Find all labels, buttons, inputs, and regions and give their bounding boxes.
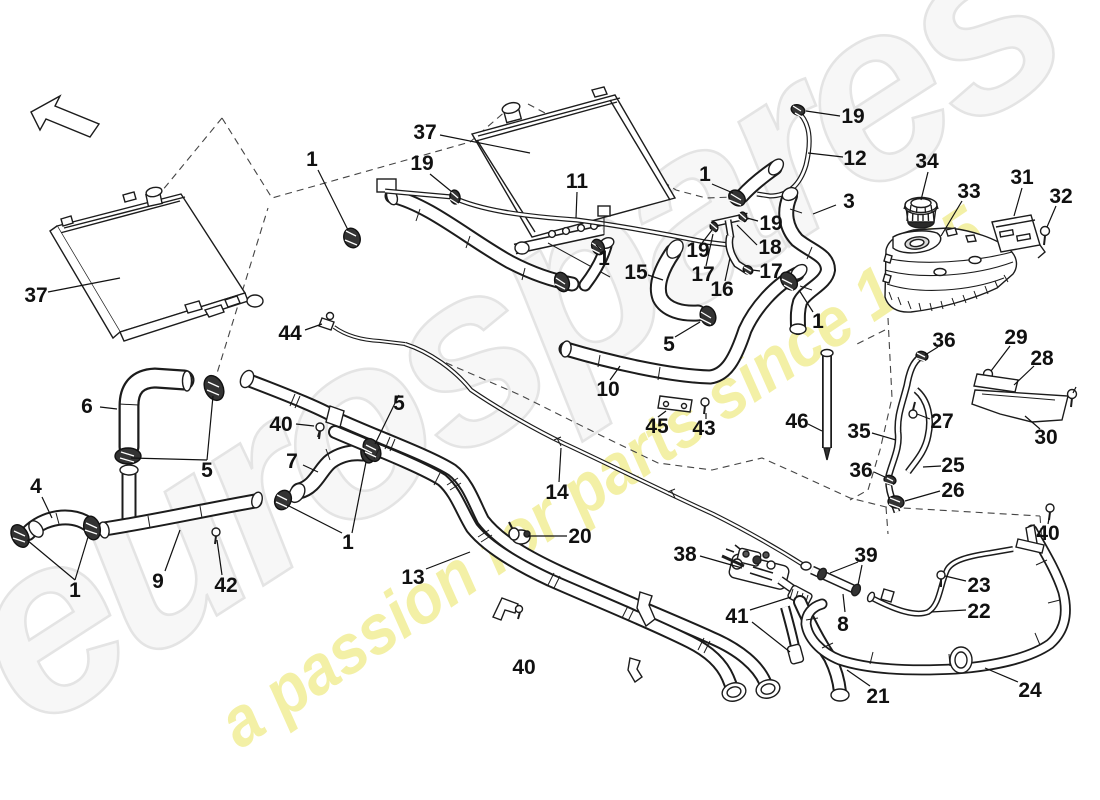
svg-text:26: 26 [941, 479, 964, 502]
svg-text:28: 28 [1030, 347, 1054, 370]
svg-text:19: 19 [410, 152, 433, 175]
svg-text:42: 42 [214, 574, 237, 597]
svg-text:32: 32 [1049, 185, 1072, 208]
svg-text:33: 33 [957, 180, 980, 203]
svg-text:5: 5 [663, 333, 675, 356]
svg-text:43: 43 [692, 417, 715, 440]
svg-text:1: 1 [342, 531, 354, 554]
svg-text:19: 19 [686, 239, 709, 262]
svg-text:16: 16 [710, 278, 733, 301]
svg-text:41: 41 [725, 605, 749, 628]
svg-text:36: 36 [932, 329, 955, 352]
svg-text:17: 17 [759, 260, 782, 283]
svg-text:23: 23 [967, 574, 990, 597]
svg-text:5: 5 [393, 392, 405, 415]
svg-text:44: 44 [278, 322, 302, 345]
svg-text:27: 27 [930, 410, 953, 433]
svg-text:40: 40 [1036, 522, 1059, 545]
svg-text:5: 5 [201, 459, 213, 482]
svg-text:19: 19 [759, 212, 782, 235]
svg-text:12: 12 [843, 147, 866, 170]
svg-text:14: 14 [545, 481, 569, 504]
svg-text:1: 1 [812, 310, 824, 333]
svg-text:6: 6 [81, 395, 93, 418]
svg-text:8: 8 [837, 613, 849, 636]
svg-text:29: 29 [1004, 326, 1027, 349]
svg-text:40: 40 [269, 413, 292, 436]
svg-text:21: 21 [866, 685, 890, 708]
svg-text:1: 1 [69, 579, 81, 602]
svg-text:13: 13 [401, 566, 424, 589]
svg-text:1: 1 [699, 163, 711, 186]
svg-text:40: 40 [512, 656, 535, 679]
svg-text:37: 37 [413, 121, 436, 144]
svg-text:19: 19 [841, 105, 864, 128]
svg-text:31: 31 [1010, 166, 1034, 189]
svg-text:39: 39 [854, 544, 877, 567]
svg-text:34: 34 [915, 150, 939, 173]
svg-text:3: 3 [843, 190, 855, 213]
svg-text:25: 25 [941, 454, 965, 477]
svg-text:46: 46 [785, 410, 808, 433]
svg-text:1: 1 [306, 148, 318, 171]
svg-text:7: 7 [286, 450, 298, 473]
svg-text:22: 22 [967, 600, 990, 623]
svg-text:24: 24 [1018, 679, 1042, 702]
svg-text:1: 1 [598, 247, 610, 270]
svg-text:38: 38 [673, 543, 697, 566]
svg-text:10: 10 [596, 378, 619, 401]
svg-text:18: 18 [758, 236, 782, 259]
svg-text:9: 9 [152, 570, 164, 593]
svg-text:11: 11 [566, 170, 589, 193]
svg-text:20: 20 [568, 525, 591, 548]
svg-text:30: 30 [1034, 426, 1057, 449]
svg-text:15: 15 [624, 261, 648, 284]
svg-text:4: 4 [30, 475, 42, 498]
svg-text:35: 35 [847, 420, 871, 443]
svg-text:36: 36 [849, 459, 872, 482]
svg-text:37: 37 [24, 284, 47, 307]
svg-text:45: 45 [645, 415, 669, 438]
